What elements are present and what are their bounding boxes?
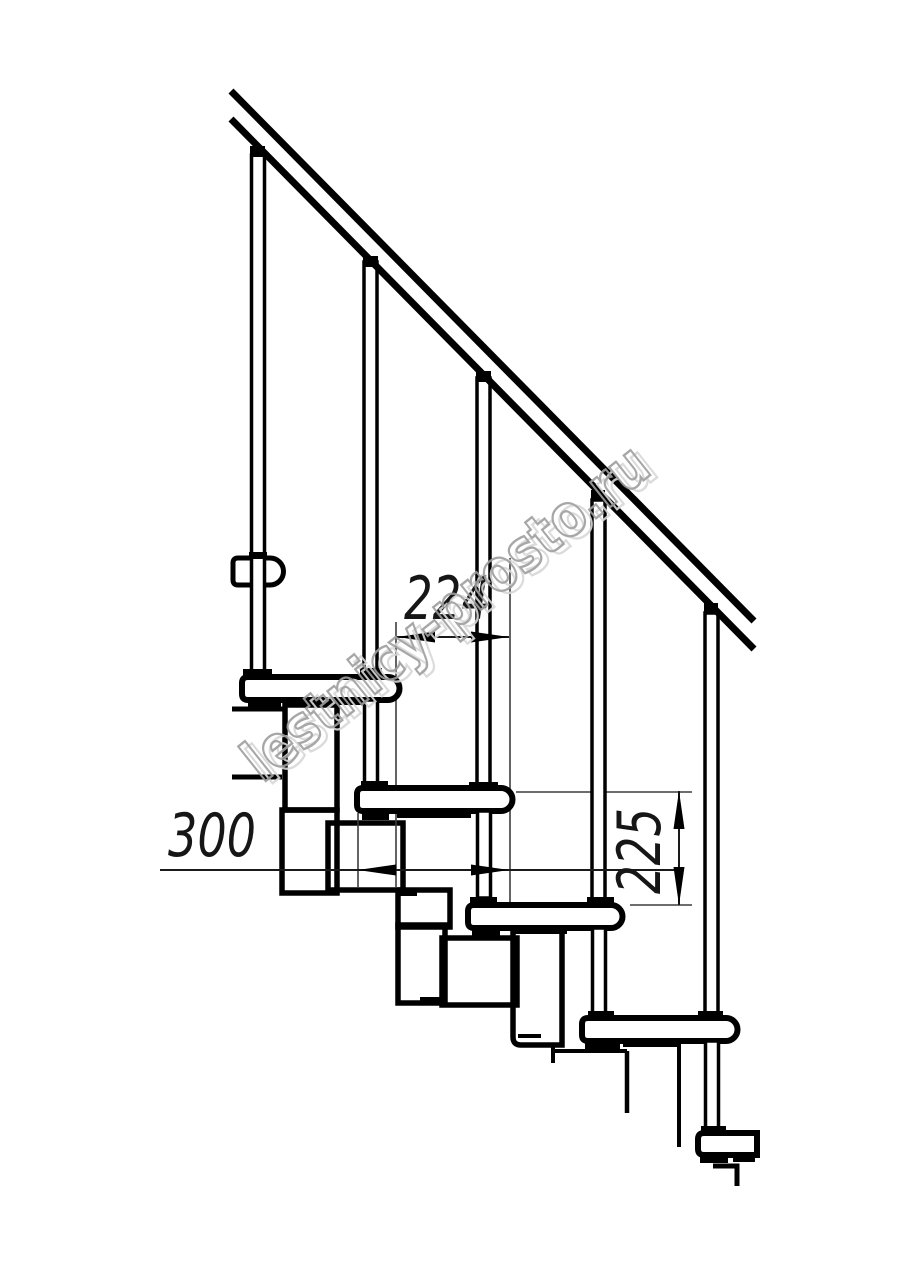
staircase-drawing: 224 300 225 lestnicy-prosto.ru lestnicy-… <box>0 0 914 1280</box>
tread-bracket <box>588 1011 614 1019</box>
tread-bracket <box>361 781 388 789</box>
tread-bracket <box>587 897 614 905</box>
dimension-label: 300 <box>168 801 256 871</box>
module <box>513 927 562 1045</box>
tread-bracket <box>243 669 272 678</box>
tread-bracket <box>470 897 497 905</box>
arrow-up-icon <box>674 791 685 829</box>
baluster-5 <box>698 603 726 1134</box>
tread-bracket <box>701 1126 726 1134</box>
baluster-4 <box>587 490 614 1019</box>
module <box>398 925 445 1003</box>
dimension-225: 225 <box>605 791 685 905</box>
tread-bracket <box>249 552 267 559</box>
arrow-down-icon <box>674 867 685 905</box>
tread-5 <box>582 1018 738 1041</box>
module <box>442 938 517 1005</box>
tread-bracket <box>469 782 498 790</box>
tread-3 <box>357 788 513 811</box>
cut-line <box>713 1166 737 1186</box>
tread-4 <box>468 905 623 928</box>
tread-6-partial <box>698 1133 757 1155</box>
baluster-1 <box>243 146 272 678</box>
drawing-page: 224 300 225 lestnicy-prosto.ru lestnicy-… <box>0 0 914 1280</box>
tread-bracket <box>698 1011 723 1019</box>
dimension-label: 225 <box>605 808 675 894</box>
arrow-left-icon <box>358 865 396 876</box>
